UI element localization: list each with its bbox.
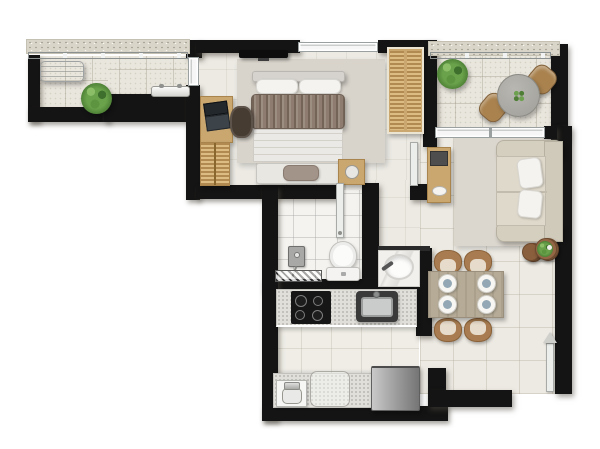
entry-door-leaf [546, 343, 554, 392]
toilet [326, 240, 360, 282]
place-setting-4 [477, 295, 496, 314]
toilet-flush-button [341, 272, 346, 276]
wall-kitchen-bottom [262, 406, 448, 421]
console-decor-dish [432, 186, 447, 196]
bed-duvet [251, 94, 345, 129]
sofa-pillow-2 [517, 189, 544, 219]
entry-arrow [543, 332, 557, 343]
refrigerator [371, 366, 420, 411]
shower-glass-screen [275, 270, 322, 282]
toilet-bowl [329, 241, 357, 270]
sink-faucet [373, 291, 380, 298]
washer-outline [310, 371, 350, 407]
floor-plan [0, 0, 600, 449]
balcony-plant [81, 83, 112, 114]
bedroom-balcony-window [188, 57, 199, 86]
door-knob [338, 231, 342, 235]
table-lamp [345, 165, 359, 179]
rack-handle-2 [177, 84, 182, 88]
dining-plant-pot [522, 237, 558, 265]
laptop-keyboard [205, 113, 231, 131]
place-setting-3 [438, 295, 457, 314]
laundry-tub [276, 380, 307, 407]
place-setting-1 [438, 274, 457, 293]
place-setting-2 [477, 274, 496, 293]
wardrobe-right-section [407, 51, 421, 130]
dining-chair-4 [464, 318, 492, 342]
bathroom-door-leaf [336, 183, 344, 238]
burner-4 [312, 310, 323, 321]
wardrobe [387, 47, 424, 134]
shower-knob [294, 252, 300, 258]
wardrobe-left-section [390, 51, 404, 130]
desk-chair [230, 106, 253, 138]
laundry-faucet [284, 382, 300, 390]
terrace-round-table [497, 74, 540, 117]
drawer-cabinet [200, 142, 230, 186]
drying-rack [151, 86, 190, 97]
burner-3 [295, 310, 305, 320]
wall-dining-bottom [428, 390, 512, 407]
console-sideboard [427, 147, 451, 203]
table-centerpiece-plant [513, 90, 525, 102]
cooktop [291, 291, 331, 324]
sink-basin [361, 297, 393, 317]
bed-pillow-right [299, 79, 341, 94]
burner-2 [313, 296, 323, 306]
shower-control [288, 246, 305, 267]
glass-door-mullion [489, 128, 492, 137]
cabinet-divider [214, 143, 216, 185]
tv-mount [258, 58, 269, 61]
terrace-plant [437, 59, 468, 89]
laundry-basin [282, 388, 302, 404]
nightstand [338, 159, 365, 185]
burner-1 [295, 295, 307, 307]
wall-glass-corner-nib [544, 126, 557, 139]
wall-bathroom-east [362, 183, 379, 289]
console-decor-dark [430, 151, 448, 166]
ac-condenser-unit [40, 61, 84, 82]
hall-door-leaf [410, 142, 418, 186]
bed-sheet [253, 129, 343, 162]
bench-cushion [283, 165, 319, 181]
wall-bedroom-west [186, 85, 200, 200]
balcony-railing [28, 52, 188, 59]
laptop [203, 100, 231, 132]
dining-pot-flower [547, 245, 552, 250]
terrace-railing [430, 52, 551, 59]
wall-balcony-corner [104, 94, 198, 122]
kitchen-sink [356, 291, 398, 322]
bedroom-window [298, 42, 378, 52]
bed-pillow-left [256, 79, 298, 94]
wall-tv [239, 50, 288, 58]
dining-chair-3 [434, 318, 462, 342]
rack-handle [159, 84, 164, 88]
sofa-pillow-1 [516, 156, 544, 189]
terrace-sliding-glass-door [435, 127, 545, 138]
